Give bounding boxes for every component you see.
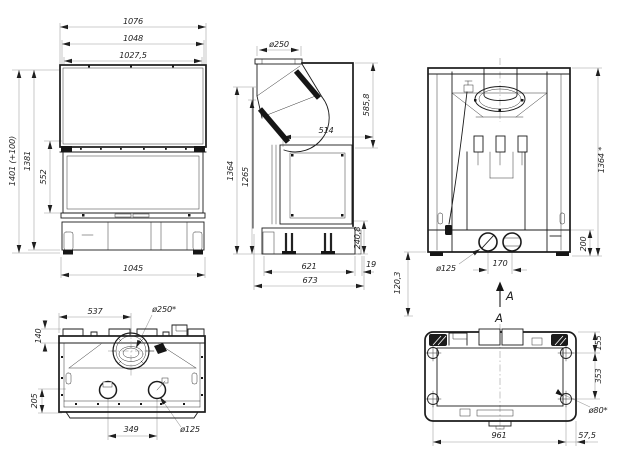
dim-rear-lower-offset: 120,3	[392, 272, 402, 294]
dim-front-width-overall: 1076	[123, 16, 143, 26]
dim-rear-height-overall: 1364 *	[596, 147, 606, 173]
drawing-sheet: 1076 1048 1027,5 1401 (+100) 1381 552 10…	[0, 0, 624, 460]
dim-front-width-base: 1045	[123, 263, 143, 273]
dim-rear-inlet-diameter: ø125	[435, 263, 456, 273]
dim-bottom-side-offset: 57,5	[578, 430, 595, 440]
dim-top-rear-ledge: 140	[33, 328, 43, 343]
dim-side-hood-height: 585,8	[361, 94, 371, 116]
dim-front-height-overall: 1401 (+100)	[7, 136, 17, 186]
dim-bottom-hole-spacing: 353	[593, 368, 603, 383]
dim-side-depth-overall: 673	[302, 275, 317, 285]
dim-top-front-depth: 205	[29, 393, 39, 408]
dim-side-height-overall: 1364	[225, 161, 235, 181]
side-view: ø250 585,8 514 1364 1265 240,8 19 621 67…	[225, 39, 378, 290]
dim-bottom-hole-diameter: ø80*	[588, 405, 608, 415]
view-a-label: A	[494, 311, 503, 325]
dim-top-flue-center: 537	[87, 306, 103, 316]
dim-top-flue-diameter: ø250*	[151, 304, 176, 314]
dim-front-height-body: 1381	[22, 151, 32, 171]
dim-side-rear-gap: 19	[366, 259, 376, 269]
dim-side-height-base: 240,8	[352, 227, 362, 249]
rear-view: 1364 * 200 120,3 ø125 170 A	[392, 58, 606, 316]
dim-side-height-body: 1265	[240, 167, 250, 187]
dim-front-width-frame: 1048	[123, 33, 143, 43]
dim-side-depth-glass: 514	[318, 125, 333, 135]
dim-rear-plinth-height: 200	[578, 236, 588, 251]
front-view: 1076 1048 1027,5 1401 (+100) 1381 552 10…	[7, 16, 206, 278]
dim-top-inlet-spacing: 349	[123, 424, 138, 434]
dim-front-width-glass: 1027,5	[119, 50, 146, 60]
dim-front-height-glass: 552	[38, 169, 48, 184]
dim-side-depth-base: 621	[301, 261, 316, 271]
bottom-view: A 155 353 ø80* 961 57,5	[425, 311, 607, 446]
technical-drawing: 1076 1048 1027,5 1401 (+100) 1381 552 10…	[0, 0, 624, 460]
dim-rear-inlet-spacing: 170	[492, 258, 507, 268]
section-arrow-label: A	[505, 289, 514, 303]
dim-bottom-rear-offset: 155	[593, 335, 603, 350]
dim-bottom-width-holes: 961	[491, 430, 506, 440]
dim-side-flue-diameter: ø250	[268, 39, 289, 49]
top-view: 537 ø250* 140 205 349 ø125	[29, 304, 205, 440]
dim-top-inlet-diameter: ø125	[179, 424, 200, 434]
